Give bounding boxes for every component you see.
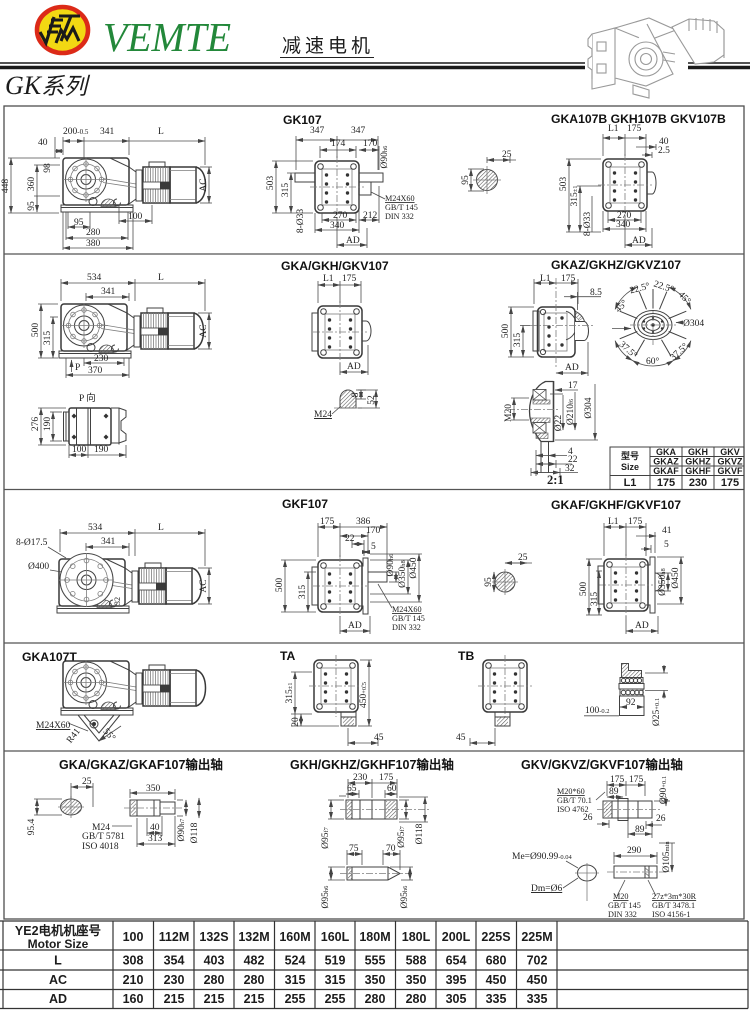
svg-text:45: 45: [456, 733, 466, 743]
svg-text:GKA107T: GKA107T: [22, 650, 77, 664]
svg-text:215: 215: [164, 992, 185, 1006]
svg-text:500: 500: [501, 324, 511, 339]
svg-text:减速电机: 减速电机: [282, 35, 374, 57]
svg-text:27z*3m*30R: 27z*3m*30R: [652, 892, 697, 901]
svg-text:175: 175: [721, 477, 739, 489]
svg-text:Ø400: Ø400: [28, 562, 49, 572]
svg-text:95: 95: [27, 201, 37, 211]
svg-text:GKVF: GKVF: [717, 466, 743, 476]
svg-text:350: 350: [146, 784, 161, 794]
svg-text:25: 25: [502, 150, 512, 160]
svg-text:YE2电机机座号: YE2电机机座号: [15, 923, 101, 938]
svg-text:702: 702: [527, 954, 548, 968]
svg-text:GB/T 70.1: GB/T 70.1: [557, 796, 592, 805]
svg-text:175: 175: [320, 517, 335, 527]
svg-text:588: 588: [406, 954, 427, 968]
svg-text:M24X60: M24X60: [392, 605, 422, 614]
svg-text:22.5°: 22.5°: [629, 280, 652, 296]
svg-text:GB/T 3478.1: GB/T 3478.1: [652, 901, 695, 910]
svg-text:160: 160: [123, 992, 144, 1006]
svg-text:175: 175: [342, 274, 357, 284]
svg-text:8.5: 8.5: [590, 288, 602, 298]
svg-text:175: 175: [610, 775, 625, 785]
svg-text:L: L: [54, 954, 62, 968]
svg-text:341: 341: [100, 127, 115, 137]
svg-text:255: 255: [285, 992, 306, 1006]
svg-text:DIN 332: DIN 332: [385, 212, 414, 221]
svg-text:GK107: GK107: [283, 113, 322, 127]
svg-text:60: 60: [387, 784, 397, 794]
svg-text:315: 315: [513, 333, 523, 348]
svg-text:AD: AD: [347, 362, 361, 372]
svg-text:280: 280: [244, 973, 265, 987]
svg-text:315: 315: [43, 331, 53, 346]
svg-text:Ø118: Ø118: [415, 823, 425, 844]
svg-text:2.5: 2.5: [658, 146, 670, 156]
svg-text:280: 280: [365, 992, 386, 1006]
svg-text:95: 95: [484, 577, 494, 587]
svg-text:524: 524: [285, 954, 306, 968]
svg-text:37.5°: 37.5°: [668, 341, 691, 363]
svg-text:型号: 型号: [621, 450, 639, 461]
svg-text:Dm=Ø6: Dm=Ø6: [531, 884, 562, 894]
svg-text:Ø304: Ø304: [683, 319, 704, 329]
svg-text:315: 315: [298, 585, 308, 600]
svg-text:Motor Size: Motor Size: [28, 937, 89, 951]
svg-text:5: 5: [371, 542, 376, 552]
svg-text:Ø95h6: Ø95h6: [321, 885, 331, 909]
svg-text:M20: M20: [613, 892, 628, 901]
svg-text:95: 95: [74, 218, 84, 228]
svg-text:17: 17: [568, 381, 578, 391]
svg-text:200-0.5: 200-0.5: [63, 127, 89, 137]
svg-text:TB: TB: [458, 649, 474, 663]
svg-text:GKVZ: GKVZ: [717, 457, 743, 467]
svg-text:22.5°: 22.5°: [652, 279, 675, 296]
svg-text:230: 230: [94, 354, 109, 364]
svg-text:Size: Size: [621, 462, 639, 472]
svg-text:2:1: 2:1: [547, 473, 564, 487]
svg-text:305: 305: [446, 992, 467, 1006]
svg-text:175: 175: [379, 773, 394, 783]
svg-text:200L: 200L: [442, 930, 471, 944]
svg-text:Ø450: Ø450: [409, 557, 419, 578]
svg-text:GKAF/GKHF/GKVF107: GKAF/GKHF/GKVF107: [551, 498, 681, 512]
svg-text:32: 32: [113, 597, 122, 605]
svg-text:448: 448: [1, 179, 11, 194]
svg-text:100: 100: [72, 445, 87, 455]
svg-text:L: L: [158, 273, 164, 283]
svg-text:347: 347: [310, 126, 325, 136]
svg-text:98: 98: [43, 163, 53, 173]
svg-text:315: 315: [281, 183, 291, 198]
svg-text:190: 190: [43, 417, 53, 432]
svg-text:L1: L1: [608, 517, 619, 527]
svg-text:341: 341: [101, 537, 116, 547]
svg-text:AD: AD: [635, 621, 649, 631]
svg-text:Ø90h6: Ø90h6: [386, 553, 396, 577]
svg-text:P 向: P 向: [79, 392, 96, 404]
svg-text:280: 280: [406, 992, 427, 1006]
svg-text:GKF107: GKF107: [282, 497, 328, 511]
svg-text:AD: AD: [565, 363, 579, 373]
svg-text:Ø210f6: Ø210f6: [566, 399, 576, 425]
svg-text:GB/T 145: GB/T 145: [392, 614, 425, 623]
svg-text:GB/T 5781: GB/T 5781: [82, 832, 125, 842]
svg-text:270: 270: [333, 211, 348, 221]
svg-text:175: 175: [657, 477, 675, 489]
svg-text:350: 350: [406, 973, 427, 987]
svg-text:534: 534: [87, 273, 102, 283]
svg-text:40: 40: [150, 823, 160, 833]
svg-text:40: 40: [38, 138, 48, 148]
svg-text:315: 315: [325, 973, 346, 987]
svg-text:M20: M20: [504, 404, 514, 422]
svg-text:215: 215: [244, 992, 265, 1006]
svg-text:225M: 225M: [521, 930, 552, 944]
svg-text:340: 340: [330, 221, 345, 231]
svg-text:60°: 60°: [646, 356, 660, 367]
svg-text:52: 52: [367, 395, 377, 405]
svg-text:Ø95f7: Ø95f7: [397, 825, 407, 848]
svg-text:8-Ø33: 8-Ø33: [296, 209, 306, 234]
svg-text:AD: AD: [49, 992, 67, 1006]
svg-text:L: L: [158, 523, 164, 533]
svg-text:175: 175: [561, 274, 576, 284]
svg-text:Ø25+0.1: Ø25+0.1: [652, 698, 662, 726]
svg-text:GKA: GKA: [656, 447, 677, 457]
svg-text:170: 170: [363, 139, 378, 149]
svg-text:45: 45: [374, 733, 384, 743]
svg-text:8-Ø33: 8-Ø33: [583, 212, 593, 237]
svg-text:AD: AD: [632, 236, 646, 246]
svg-text:210: 210: [123, 973, 144, 987]
svg-text:GKA/GKAZ/GKAF107输出轴: GKA/GKAZ/GKAF107输出轴: [59, 757, 223, 772]
svg-text:AC: AC: [199, 324, 209, 337]
svg-text:450: 450: [527, 973, 548, 987]
svg-text:M24: M24: [314, 410, 332, 420]
svg-text:503: 503: [266, 176, 276, 191]
svg-text:GKV: GKV: [720, 447, 740, 457]
svg-text:GKHF: GKHF: [685, 466, 711, 476]
svg-text:308: 308: [123, 954, 144, 968]
svg-text:290: 290: [627, 846, 642, 856]
svg-text:26: 26: [656, 814, 666, 824]
svg-text:45°: 45°: [613, 298, 630, 315]
svg-text:Ø350h8: Ø350h8: [658, 568, 668, 596]
svg-text:AC: AC: [199, 178, 209, 191]
svg-text:170: 170: [366, 526, 381, 536]
svg-text:GKA/GKH/GKV107: GKA/GKH/GKV107: [281, 259, 389, 273]
svg-text:335: 335: [527, 992, 548, 1006]
svg-text:Ø118: Ø118: [190, 822, 200, 843]
svg-text:GKH/GKHZ/GKHF107输出轴: GKH/GKHZ/GKHF107输出轴: [290, 757, 454, 772]
svg-text:654: 654: [446, 954, 467, 968]
svg-text:DIN 332: DIN 332: [392, 623, 421, 632]
svg-text:ISO 4018: ISO 4018: [82, 842, 119, 852]
svg-text:403: 403: [204, 954, 225, 968]
svg-text:340: 340: [616, 220, 631, 230]
svg-text:230: 230: [689, 477, 707, 489]
svg-text:8-Ø17.5: 8-Ø17.5: [16, 538, 48, 548]
svg-text:280: 280: [86, 228, 101, 238]
svg-text:8: 8: [351, 392, 361, 397]
svg-text:160M: 160M: [279, 930, 310, 944]
svg-text:GB/T 145: GB/T 145: [608, 901, 641, 910]
svg-text:175: 175: [627, 124, 642, 134]
svg-text:GKH: GKH: [688, 447, 708, 457]
svg-text:450+0.5: 450+0.5: [359, 682, 369, 708]
svg-text:160L: 160L: [321, 930, 350, 944]
svg-text:180M: 180M: [359, 930, 390, 944]
svg-text:Ø95h6: Ø95h6: [400, 885, 410, 909]
svg-text:190: 190: [94, 445, 109, 455]
svg-text:L1: L1: [608, 124, 619, 134]
svg-text:ISO 4762: ISO 4762: [557, 805, 589, 814]
svg-text:5: 5: [664, 540, 669, 550]
svg-text:Me=Ø90.99-0.04: Me=Ø90.99-0.04: [512, 852, 573, 862]
svg-text:503: 503: [559, 177, 569, 192]
svg-text:M24X60: M24X60: [385, 194, 415, 203]
svg-text:89: 89: [609, 787, 619, 797]
svg-text:255: 255: [325, 992, 346, 1006]
svg-text:341: 341: [101, 287, 116, 297]
svg-text:100-0.2: 100-0.2: [585, 706, 610, 716]
svg-text:22: 22: [345, 534, 355, 544]
svg-text:112M: 112M: [159, 930, 190, 944]
svg-text:Ø350h8: Ø350h8: [398, 560, 408, 588]
svg-text:132M: 132M: [238, 930, 269, 944]
svg-text:M20*60: M20*60: [557, 787, 585, 796]
svg-text:Ø90h6: Ø90h6: [380, 145, 390, 169]
svg-text:M24X60: M24X60: [36, 721, 71, 731]
svg-text:534: 534: [88, 523, 103, 533]
svg-text:25: 25: [518, 553, 528, 563]
svg-text:L1: L1: [540, 274, 551, 284]
svg-text:450: 450: [486, 973, 507, 987]
svg-text:75: 75: [349, 844, 359, 854]
svg-text:65: 65: [347, 784, 357, 794]
svg-text:370: 370: [88, 366, 103, 376]
svg-text:276: 276: [31, 417, 41, 432]
svg-text:555: 555: [365, 954, 386, 968]
svg-text:GKAZ: GKAZ: [653, 457, 679, 467]
svg-text:519: 519: [325, 954, 346, 968]
svg-text:Ø22: Ø22: [554, 415, 564, 432]
svg-text:174: 174: [331, 139, 346, 149]
svg-text:100: 100: [123, 930, 144, 944]
svg-text:GB/T 145: GB/T 145: [385, 203, 418, 212]
svg-text:89: 89: [635, 825, 645, 835]
svg-text:380: 380: [86, 239, 101, 249]
svg-text:175: 175: [629, 775, 644, 785]
svg-text:Ø304: Ø304: [584, 397, 594, 418]
svg-text:230: 230: [353, 773, 368, 783]
svg-text:Ø105min: Ø105min: [662, 841, 672, 873]
svg-text:Ø450: Ø450: [671, 567, 681, 588]
svg-text:AD: AD: [346, 236, 360, 246]
svg-text:GKV/GKVZ/GKVF107输出轴: GKV/GKVZ/GKVF107输出轴: [521, 757, 683, 772]
svg-text:DIN 332: DIN 332: [608, 910, 637, 919]
svg-text:P: P: [75, 363, 80, 373]
svg-text:70: 70: [386, 844, 396, 854]
svg-text:92: 92: [626, 698, 636, 708]
svg-text:Ø95f7: Ø95f7: [321, 826, 331, 849]
svg-text:315±1: 315±1: [285, 682, 295, 703]
svg-text:45°: 45°: [676, 289, 693, 306]
svg-text:212: 212: [363, 211, 378, 221]
svg-text:280: 280: [204, 973, 225, 987]
svg-text:215: 215: [204, 992, 225, 1006]
svg-text:500: 500: [31, 323, 41, 338]
svg-text:L1: L1: [323, 274, 334, 284]
svg-text:95: 95: [461, 175, 471, 185]
svg-text:500: 500: [275, 578, 285, 593]
svg-text:20: 20: [291, 717, 301, 727]
svg-text:L1: L1: [624, 477, 637, 489]
svg-text:500: 500: [579, 582, 589, 597]
svg-text:315: 315: [590, 592, 600, 607]
svg-text:GKAF: GKAF: [653, 466, 679, 476]
svg-text:335: 335: [486, 992, 507, 1006]
svg-text:Ø90h7: Ø90h7: [177, 818, 187, 842]
svg-text:225S: 225S: [481, 930, 510, 944]
svg-text:VEMTE: VEMTE: [103, 14, 231, 60]
svg-text:32: 32: [565, 464, 575, 474]
svg-text:350: 350: [365, 973, 386, 987]
svg-text:AC: AC: [49, 973, 67, 987]
svg-text:AC: AC: [199, 579, 209, 592]
svg-text:41: 41: [662, 526, 672, 536]
svg-text:AD: AD: [348, 621, 362, 631]
svg-text:25: 25: [82, 777, 92, 787]
svg-text:Ø90+0.1: Ø90+0.1: [659, 776, 669, 804]
svg-text:680: 680: [486, 954, 507, 968]
svg-text:230: 230: [164, 973, 185, 987]
svg-text:100: 100: [128, 212, 143, 222]
svg-text:L: L: [158, 127, 164, 137]
svg-text:313: 313: [148, 834, 163, 844]
svg-text:482: 482: [244, 954, 265, 968]
svg-text:TA: TA: [280, 649, 296, 663]
svg-text:180L: 180L: [402, 930, 431, 944]
svg-text:GKAZ/GKHZ/GKVZ107: GKAZ/GKHZ/GKVZ107: [551, 258, 681, 272]
svg-text:315±1: 315±1: [570, 185, 580, 206]
svg-text:GKHZ: GKHZ: [685, 457, 711, 467]
svg-text:360: 360: [27, 177, 37, 192]
svg-text:95.4: 95.4: [27, 818, 37, 835]
svg-text:395: 395: [446, 973, 467, 987]
svg-text:GK系列: GK系列: [5, 71, 91, 100]
svg-text:ISO 4156-1: ISO 4156-1: [652, 910, 690, 919]
svg-text:347: 347: [351, 126, 366, 136]
svg-text:26: 26: [583, 813, 593, 823]
svg-text:354: 354: [164, 954, 185, 968]
svg-text:132S: 132S: [199, 930, 228, 944]
svg-text:175: 175: [628, 517, 643, 527]
svg-text:315: 315: [285, 973, 306, 987]
